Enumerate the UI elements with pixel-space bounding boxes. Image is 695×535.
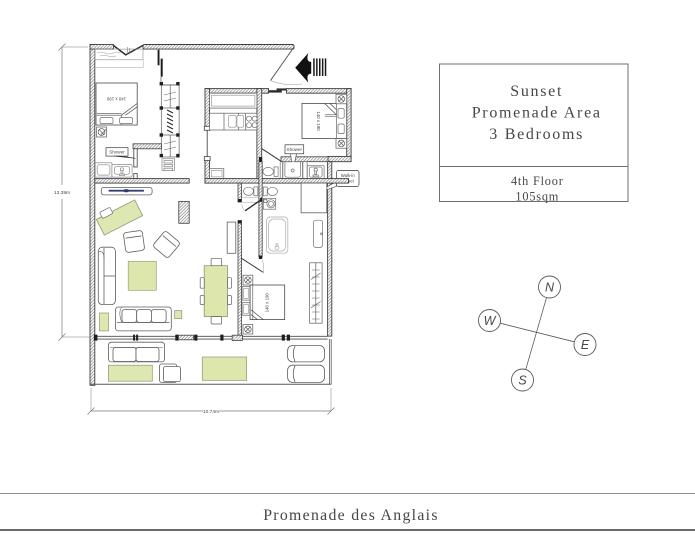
svg-text:3 Bedrooms: 3 Bedrooms [489,126,584,143]
svg-text:4th Floor: 4th Floor [511,174,564,188]
svg-text:105sqm: 105sqm [515,190,559,204]
svg-text:E: E [581,338,590,352]
svg-text:S: S [518,373,527,387]
svg-text:Shower: Shower [109,150,125,155]
svg-text:N: N [545,280,555,294]
svg-text:140 x 190: 140 x 190 [316,111,321,131]
svg-text:W: W [484,314,497,328]
svg-text:Sunset: Sunset [510,83,563,100]
svg-text:Promenade Area: Promenade Area [472,105,602,122]
svg-text:Shower: Shower [287,147,303,152]
svg-text:140 x 190: 140 x 190 [265,293,270,313]
svg-text:10.74m: 10.74m [203,409,219,415]
svg-text:Walk-in: Walk-in [341,173,355,178]
svg-text:13.39m: 13.39m [54,190,70,196]
svg-text:140 x 190: 140 x 190 [106,97,126,102]
svg-text:Promenade des Anglais: Promenade des Anglais [263,507,439,524]
